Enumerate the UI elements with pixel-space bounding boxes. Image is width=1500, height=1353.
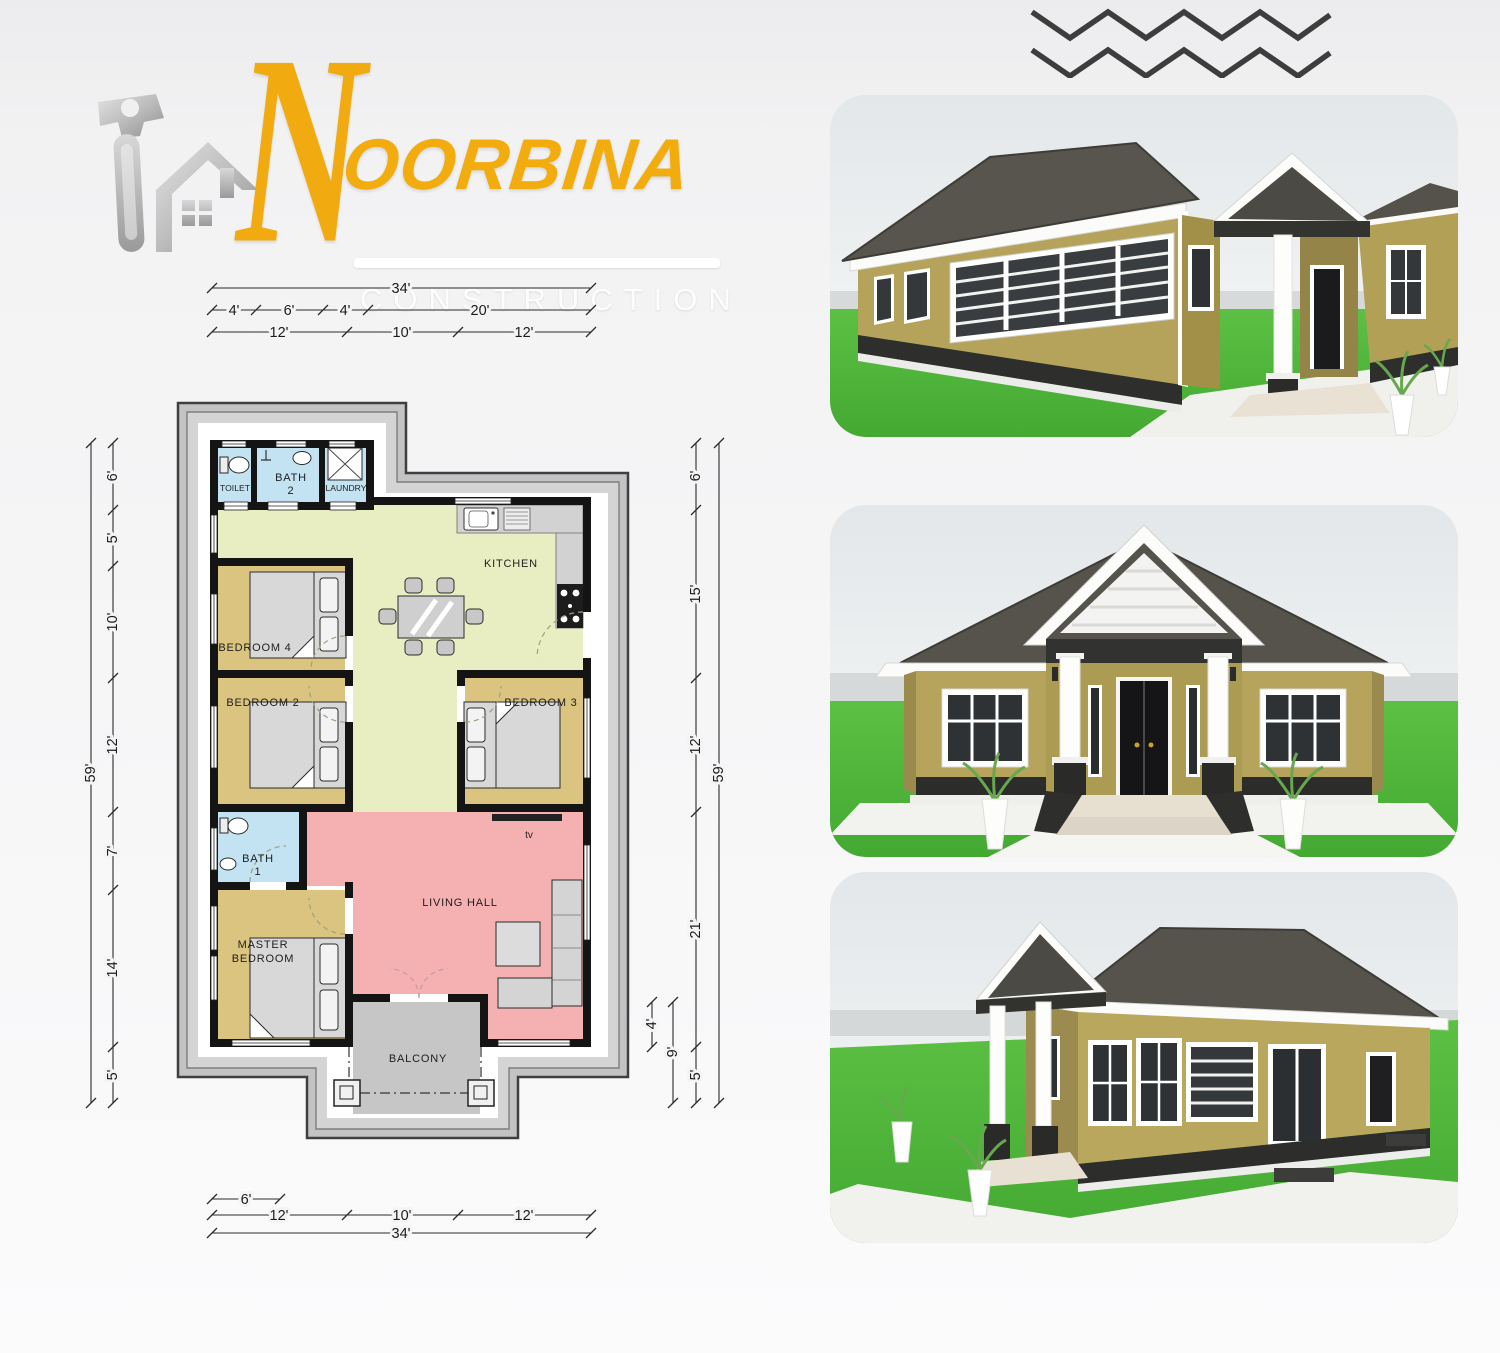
svg-text:12': 12'	[515, 1208, 534, 1224]
tv-unit	[492, 814, 562, 821]
logo-name: OORBINA	[339, 124, 695, 206]
svg-text:12': 12'	[270, 325, 289, 341]
svg-text:1: 1	[255, 866, 262, 878]
svg-text:4': 4'	[229, 303, 240, 319]
svg-text:10': 10'	[393, 325, 412, 341]
room-corridor	[353, 670, 457, 812]
dim-left-total: 59'	[83, 763, 99, 782]
svg-text:5': 5'	[105, 1069, 121, 1080]
svg-text:12': 12'	[270, 1208, 289, 1224]
svg-text:6': 6'	[284, 303, 295, 319]
presentation-sheet: N OORBINA CONSTRUCTION	[0, 0, 1500, 1353]
svg-text:12': 12'	[688, 735, 704, 754]
zigzag-decoration	[1028, 2, 1338, 78]
label-bath1: BATH	[242, 853, 274, 865]
label-bedroom4: BEDROOM 4	[218, 642, 291, 654]
svg-text:10': 10'	[393, 1208, 412, 1224]
svg-text:21': 21'	[688, 919, 704, 938]
svg-text:6': 6'	[688, 470, 704, 481]
dim-right-total: 59'	[711, 763, 727, 782]
svg-text:6': 6'	[105, 470, 121, 481]
hammer-house-icon	[60, 72, 260, 272]
label-bedroom2: BEDROOM 2	[226, 697, 299, 709]
label-tv: tv	[525, 830, 533, 841]
svg-text:4': 4'	[644, 1018, 660, 1029]
label-master: MASTER	[238, 939, 289, 951]
floor-plan: TOILET BATH 2 LAUNDRY KITCHEN BEDROOM 4 …	[75, 270, 765, 1310]
label-toilet: TOILET	[220, 483, 251, 493]
front-elevation-render	[830, 505, 1458, 857]
label-kitchen: KITCHEN	[484, 558, 538, 570]
dim-bottom-total: 34'	[392, 1226, 411, 1242]
label-balcony: BALCONY	[389, 1053, 447, 1065]
logo-underline	[354, 258, 720, 268]
svg-text:10': 10'	[105, 612, 121, 631]
label-bedroom3: BEDROOM 3	[504, 697, 577, 709]
svg-text:12': 12'	[515, 325, 534, 341]
svg-text:7': 7'	[105, 845, 121, 856]
svg-text:20': 20'	[471, 303, 490, 319]
svg-text:4': 4'	[340, 303, 351, 319]
dim-bottom-6: 6'	[241, 1192, 252, 1208]
svg-text:BEDROOM: BEDROOM	[232, 953, 294, 965]
svg-text:2: 2	[288, 485, 295, 497]
svg-text:12': 12'	[105, 735, 121, 754]
svg-text:9': 9'	[665, 1046, 681, 1057]
dim-top-total: 34'	[392, 281, 411, 297]
svg-text:15': 15'	[688, 584, 704, 603]
svg-text:14': 14'	[105, 958, 121, 977]
label-living: LIVING HALL	[422, 897, 497, 909]
rear-corner-perspective-render	[830, 872, 1458, 1243]
label-bath2: BATH	[275, 472, 307, 484]
bed-bedroom2	[250, 702, 346, 788]
svg-text:5': 5'	[105, 532, 121, 543]
company-logo: N OORBINA CONSTRUCTION	[48, 62, 728, 277]
side-perspective-render	[830, 95, 1458, 437]
label-laundry: LAUNDRY	[326, 483, 367, 493]
svg-text:5': 5'	[688, 1069, 704, 1080]
bed-bedroom3	[464, 702, 560, 788]
